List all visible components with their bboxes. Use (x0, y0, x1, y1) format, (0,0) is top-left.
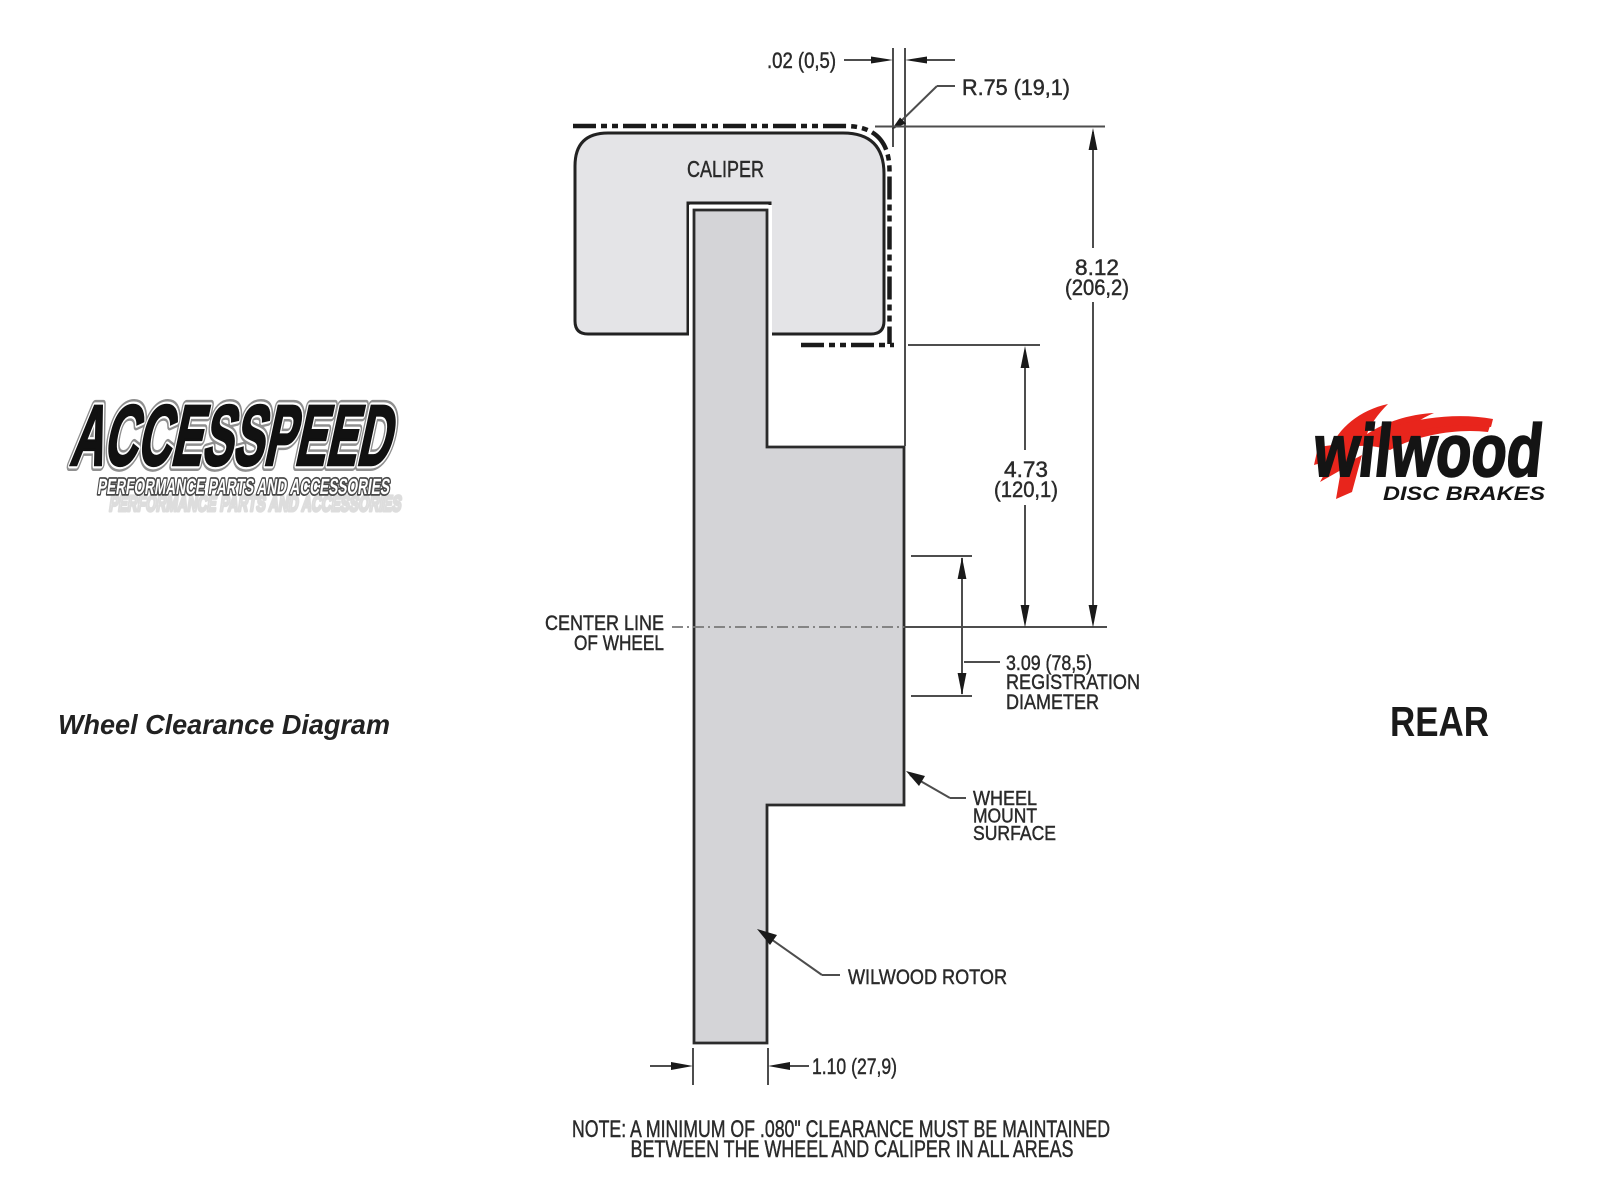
svg-text:BETWEEN THE WHEEL AND CALIPER: BETWEEN THE WHEEL AND CALIPER IN ALL ARE… (631, 1136, 1074, 1163)
svg-text:OF WHEEL: OF WHEEL (574, 632, 664, 655)
svg-text:DIAMETER: DIAMETER (1006, 691, 1099, 714)
svg-text:(206,2): (206,2) (1065, 275, 1129, 300)
svg-text:R.75 (19,1): R.75 (19,1) (962, 75, 1070, 100)
svg-text:.02 (0,5): .02 (0,5) (767, 48, 836, 73)
svg-text:ACCESSPEED: ACCESSPEED (65, 388, 405, 484)
svg-text:REAR: REAR (1390, 698, 1489, 745)
svg-text:DISC BRAKES: DISC BRAKES (1383, 484, 1545, 505)
svg-text:CALIPER: CALIPER (687, 156, 764, 182)
svg-text:WILWOOD ROTOR: WILWOOD ROTOR (848, 966, 1007, 989)
svg-text:(120,1): (120,1) (994, 477, 1058, 502)
svg-text:Wheel Clearance Diagram: Wheel Clearance Diagram (58, 709, 390, 740)
svg-text:wilwood: wilwood (1310, 409, 1547, 492)
svg-text:1.10 (27,9): 1.10 (27,9) (812, 1054, 897, 1079)
svg-text:PERFORMANCE PARTS AND ACCESSOR: PERFORMANCE PARTS AND ACCESSORIES (96, 474, 391, 499)
svg-text:SURFACE: SURFACE (973, 823, 1056, 845)
